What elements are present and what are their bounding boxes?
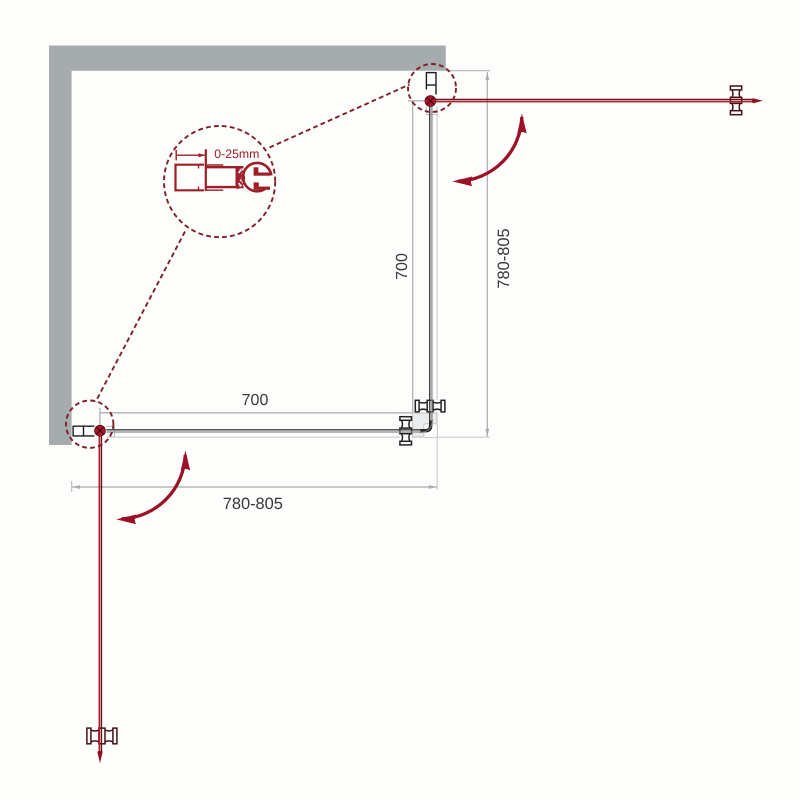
svg-text:780-805: 780-805 <box>495 228 513 288</box>
svg-text:780-805: 780-805 <box>223 495 283 513</box>
svg-text:700: 700 <box>394 253 411 280</box>
svg-text:0-25mm: 0-25mm <box>214 147 259 161</box>
svg-text:700: 700 <box>242 392 269 409</box>
